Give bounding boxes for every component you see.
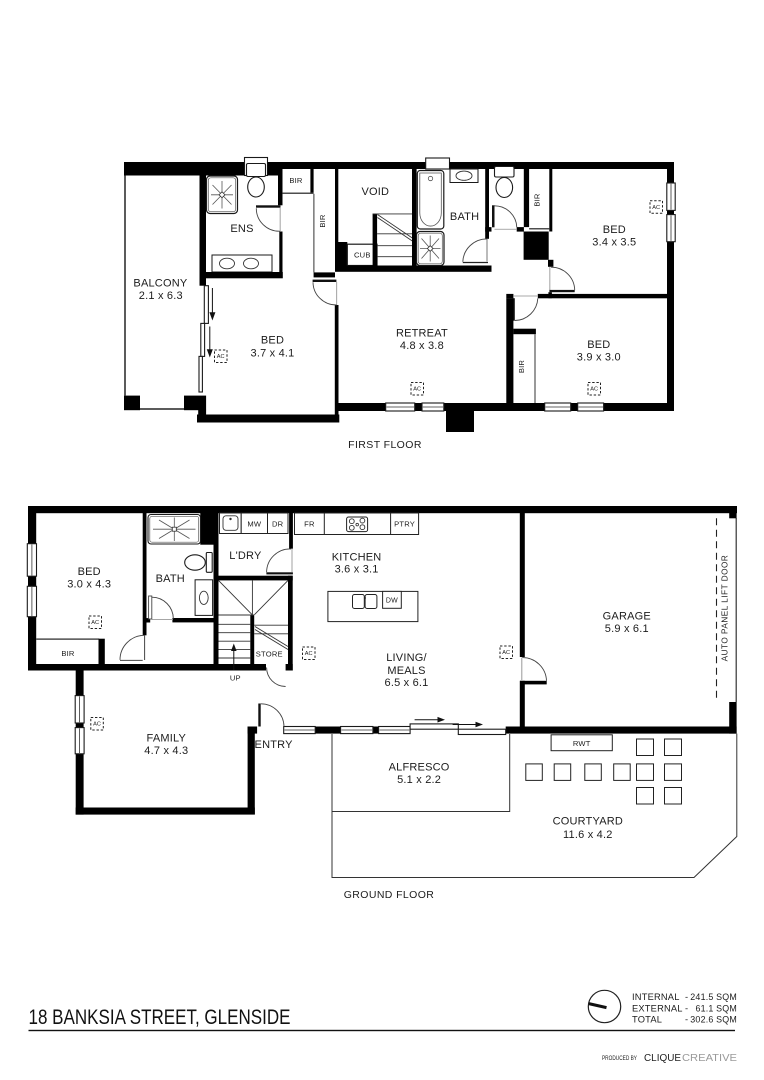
- svg-text:BIR: BIR: [318, 214, 327, 228]
- svg-text:BIR: BIR: [289, 176, 303, 185]
- svg-text:CREATIVE: CREATIVE: [682, 1052, 737, 1064]
- svg-text:ALFRESCO: ALFRESCO: [389, 761, 450, 773]
- svg-text:FR: FR: [304, 519, 315, 528]
- svg-text:AC: AC: [93, 722, 101, 728]
- svg-text:KITCHEN: KITCHEN: [332, 551, 382, 563]
- svg-text:PRODUCED BY: PRODUCED BY: [602, 1055, 637, 1062]
- svg-text:GROUND FLOOR: GROUND FLOOR: [344, 889, 435, 901]
- svg-text:2.1 x 6.3: 2.1 x 6.3: [139, 290, 183, 302]
- svg-text:GARAGE: GARAGE: [603, 611, 651, 623]
- svg-text:BED: BED: [78, 566, 101, 578]
- svg-text:AC: AC: [413, 387, 421, 393]
- svg-text:6.5 x 6.1: 6.5 x 6.1: [385, 677, 429, 689]
- svg-text:3.4 x 3.5: 3.4 x 3.5: [592, 237, 636, 249]
- svg-text:TOTAL: TOTAL: [632, 1015, 662, 1025]
- svg-text:UP: UP: [230, 674, 241, 683]
- svg-text:BALCONY: BALCONY: [133, 277, 187, 289]
- svg-text:DR: DR: [272, 519, 284, 528]
- svg-text:LIVING/: LIVING/: [386, 652, 427, 664]
- svg-text:PTRY: PTRY: [394, 519, 415, 528]
- svg-text:AC: AC: [91, 620, 99, 626]
- svg-text:DW: DW: [386, 598, 398, 605]
- svg-text:BATH: BATH: [450, 211, 479, 223]
- svg-text:VOID: VOID: [361, 186, 389, 198]
- svg-text:AC: AC: [502, 650, 510, 656]
- svg-text:241.5 SQM: 241.5 SQM: [690, 992, 737, 1002]
- svg-text:MW: MW: [247, 519, 262, 528]
- svg-text:AC: AC: [652, 205, 660, 211]
- svg-text:AUTO PANEL LIFT DOOR: AUTO PANEL LIFT DOOR: [721, 555, 730, 662]
- svg-text:4.7 x 4.3: 4.7 x 4.3: [144, 745, 188, 757]
- svg-text:COURTYARD: COURTYARD: [553, 815, 623, 827]
- svg-text:BIR: BIR: [61, 649, 75, 658]
- svg-text:-: -: [685, 1015, 688, 1025]
- svg-text:3.6 x 3.1: 3.6 x 3.1: [335, 563, 379, 575]
- svg-text:302.6 SQM: 302.6 SQM: [690, 1015, 737, 1025]
- svg-text:EXTERNAL: EXTERNAL: [632, 1003, 683, 1013]
- svg-text:L'DRY: L'DRY: [229, 550, 262, 562]
- svg-text:BATH: BATH: [156, 573, 185, 585]
- svg-text:11.6 x 4.2: 11.6 x 4.2: [563, 829, 613, 841]
- svg-text:3.7 x 4.1: 3.7 x 4.1: [251, 347, 295, 359]
- svg-text:18 BANKSIA STREET, GLENSIDE: 18 BANKSIA STREET, GLENSIDE: [29, 1005, 291, 1029]
- svg-text:BED: BED: [603, 224, 626, 236]
- svg-text:BED: BED: [261, 335, 284, 347]
- svg-text:ENS: ENS: [230, 223, 253, 235]
- svg-text:AC: AC: [305, 651, 313, 657]
- svg-text:STORE: STORE: [256, 649, 283, 658]
- svg-text:BIR: BIR: [517, 360, 526, 374]
- svg-text:AC: AC: [590, 387, 598, 393]
- svg-text:RWT: RWT: [573, 739, 591, 748]
- svg-text:-: -: [685, 1003, 688, 1013]
- svg-text:INTERNAL: INTERNAL: [632, 992, 680, 1002]
- svg-text:RETREAT: RETREAT: [396, 327, 448, 339]
- svg-text:FIRST FLOOR: FIRST FLOOR: [348, 439, 422, 451]
- svg-text:CUB: CUB: [354, 251, 371, 260]
- svg-text:AC: AC: [217, 354, 225, 360]
- svg-text:5.9 x 6.1: 5.9 x 6.1: [605, 623, 649, 635]
- svg-text:4.8 x 3.8: 4.8 x 3.8: [400, 340, 444, 352]
- svg-text:3.9 x 3.0: 3.9 x 3.0: [577, 351, 621, 363]
- svg-text:5.1 x 2.2: 5.1 x 2.2: [397, 774, 441, 786]
- svg-text:-: -: [685, 992, 688, 1002]
- svg-text:CLIQUE: CLIQUE: [644, 1052, 681, 1064]
- svg-text:3.0 x 4.3: 3.0 x 4.3: [67, 579, 111, 591]
- svg-text:BED: BED: [587, 339, 610, 351]
- svg-text:BIR: BIR: [533, 193, 542, 207]
- svg-text:MEALS: MEALS: [387, 665, 425, 677]
- svg-text:FAMILY: FAMILY: [147, 732, 187, 744]
- svg-text:61.1 SQM: 61.1 SQM: [695, 1003, 737, 1013]
- svg-text:ENTRY: ENTRY: [255, 739, 294, 751]
